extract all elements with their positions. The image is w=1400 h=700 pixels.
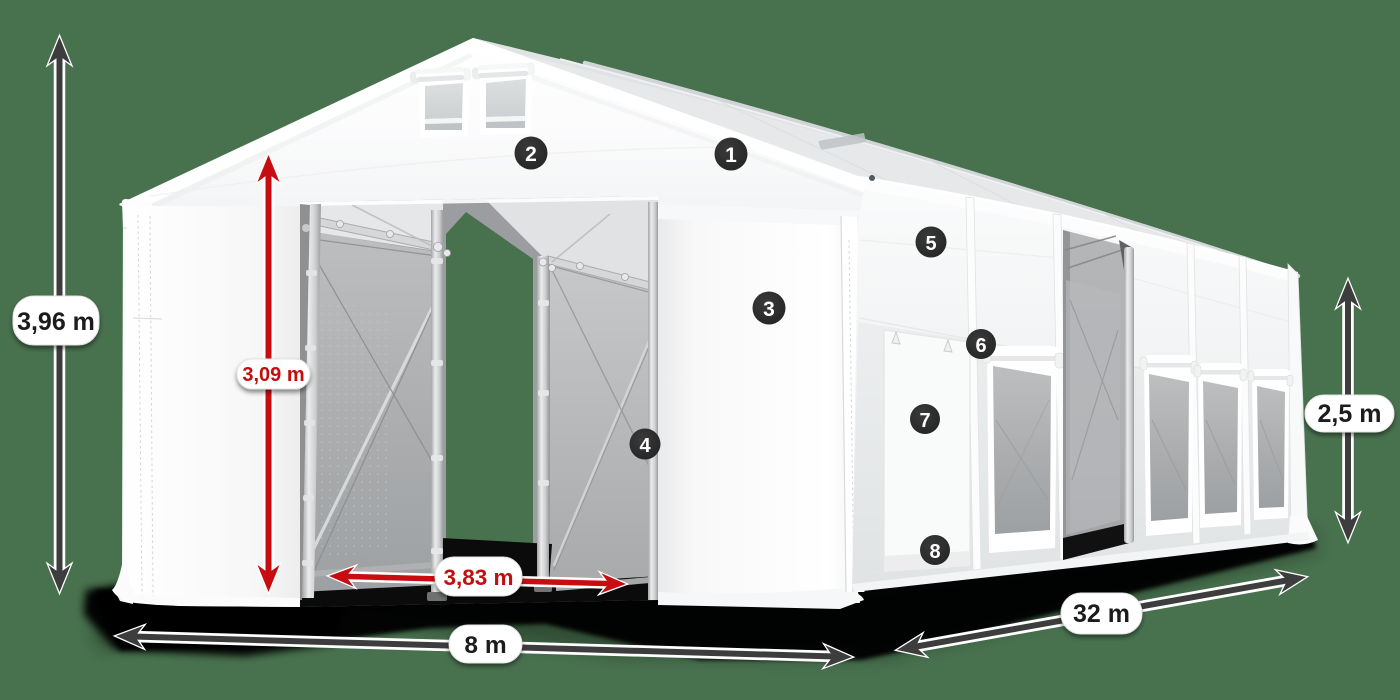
svg-text:2,5 m: 2,5 m (1318, 400, 1382, 428)
svg-text:5: 5 (925, 233, 936, 255)
svg-text:3: 3 (763, 298, 775, 321)
svg-text:8: 8 (929, 541, 940, 563)
svg-text:7: 7 (919, 410, 930, 432)
svg-text:3,83 m: 3,83 m (443, 565, 513, 590)
svg-text:1: 1 (725, 144, 737, 167)
svg-text:32 m: 32 m (1073, 600, 1130, 628)
svg-text:8 m: 8 m (464, 632, 506, 659)
svg-text:3,96 m: 3,96 m (17, 308, 95, 336)
svg-text:2: 2 (525, 143, 537, 166)
svg-text:6: 6 (975, 335, 986, 357)
svg-text:3,09 m: 3,09 m (242, 364, 304, 386)
svg-text:4: 4 (639, 435, 651, 457)
